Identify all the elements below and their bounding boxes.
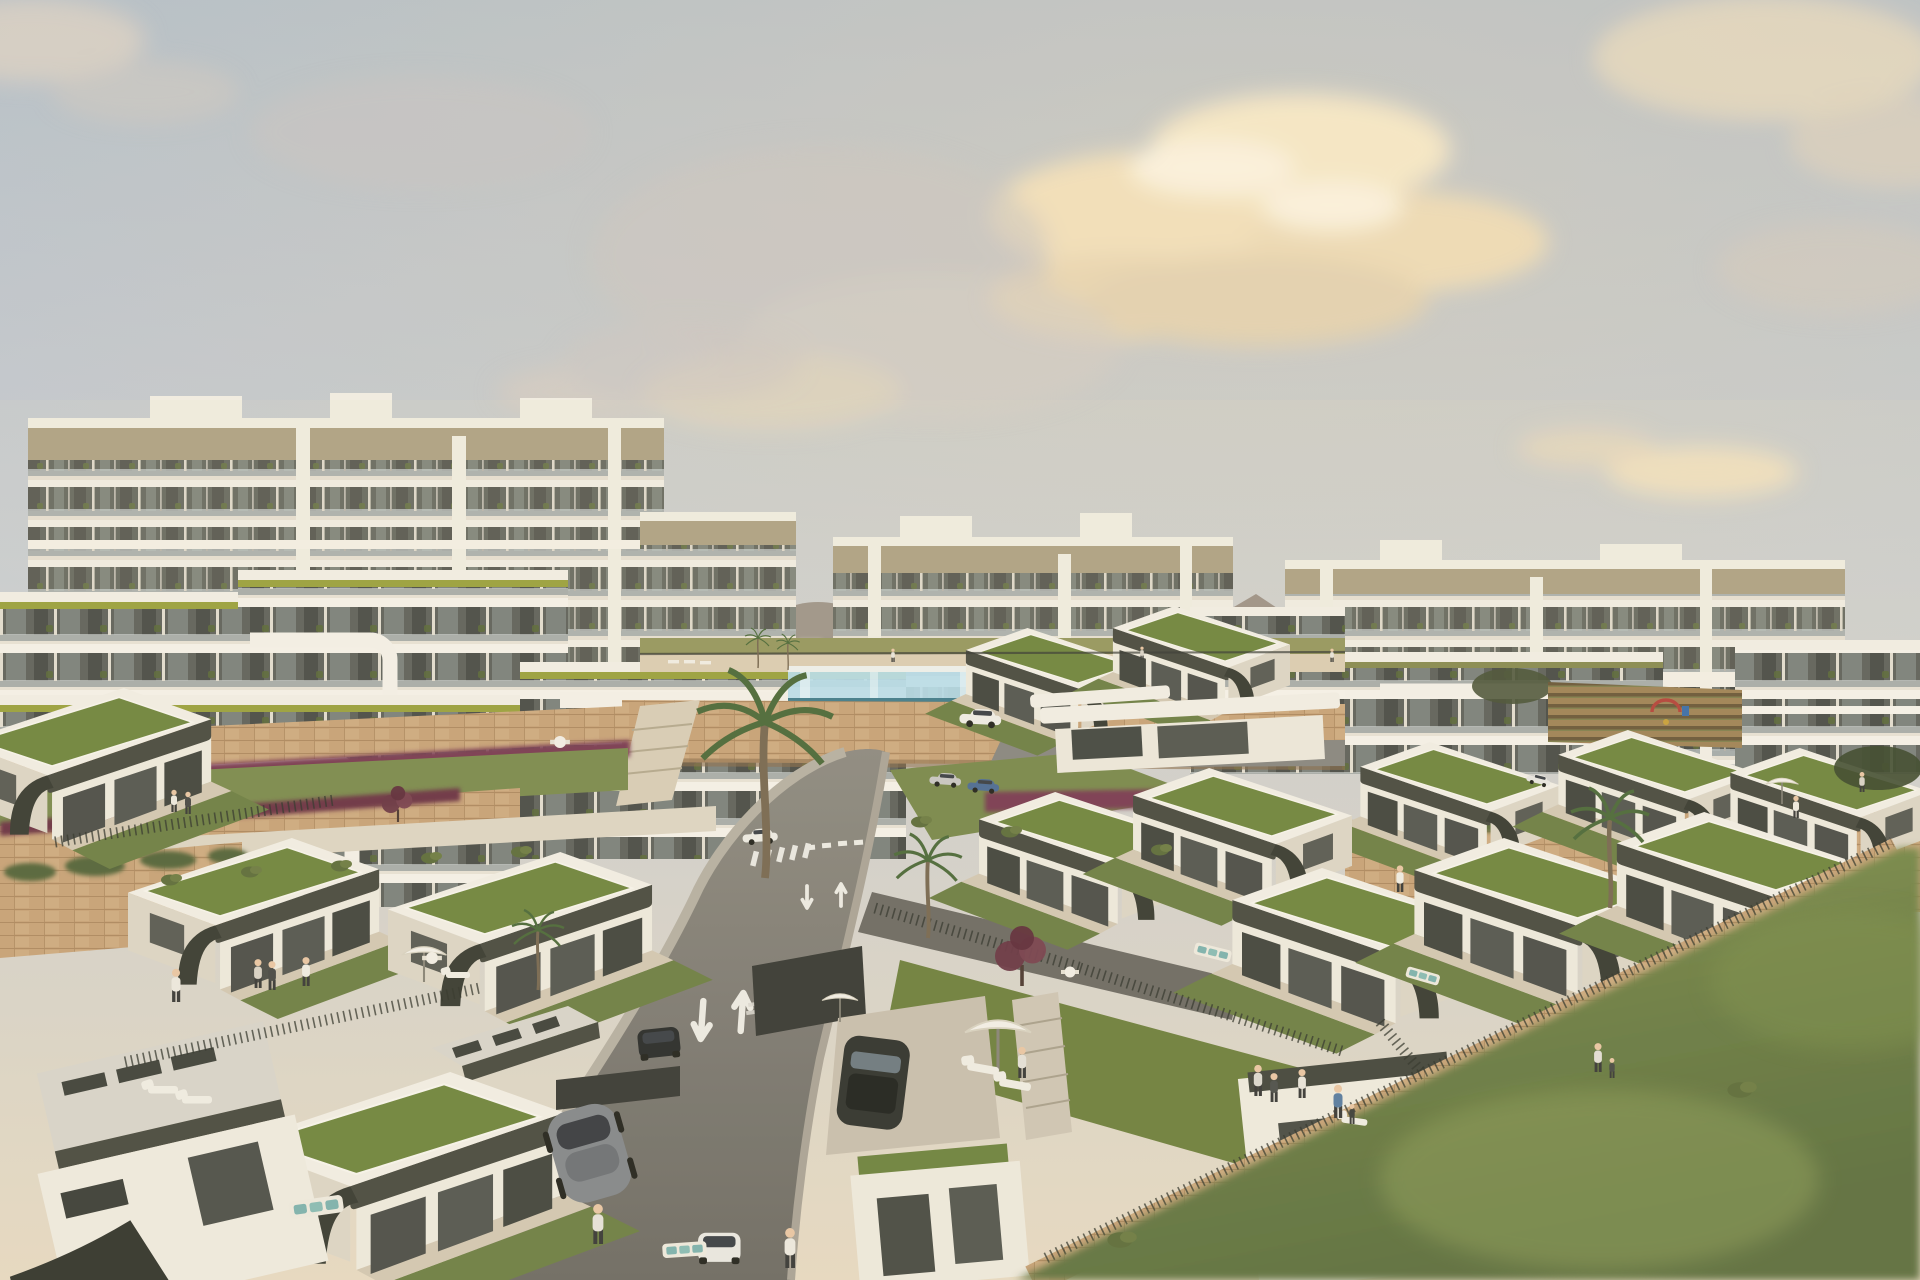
render-canvas <box>0 0 1920 1280</box>
warm-grade <box>0 0 1920 1280</box>
